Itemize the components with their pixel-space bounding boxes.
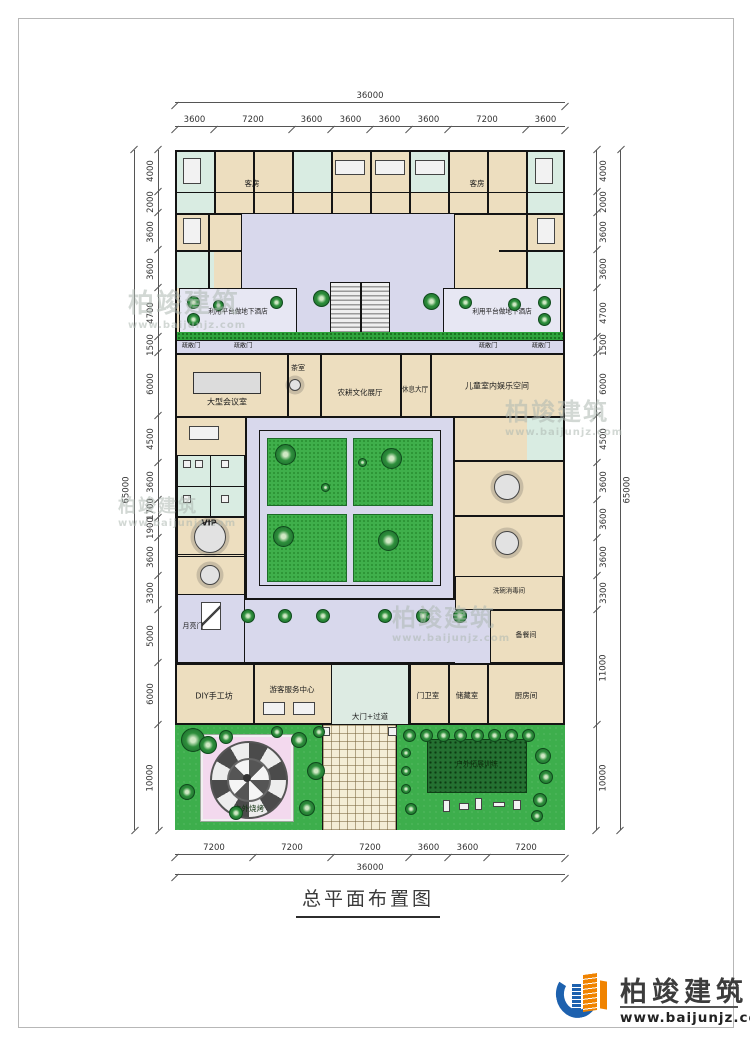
tree-icon — [378, 530, 399, 551]
tree-icon — [401, 784, 411, 794]
tree-icon — [488, 729, 501, 742]
tree-icon — [454, 729, 467, 742]
wall — [409, 152, 411, 213]
dim-segment: 3600 — [292, 112, 331, 127]
dim-left-segments: 4000200036003600470015006000450036001700… — [144, 150, 159, 830]
hedge-strip — [177, 332, 563, 340]
wall — [177, 250, 241, 252]
round-table — [495, 531, 519, 555]
table — [189, 426, 219, 440]
tree-icon — [313, 290, 330, 307]
tree-icon — [471, 729, 484, 742]
logo-building-orange-2 — [600, 980, 607, 1009]
dim-bottom-total: 36000 — [175, 860, 565, 875]
room-label-visitor-center: 游客服务中心 — [270, 686, 315, 694]
room-label-vip: VIP — [201, 520, 216, 529]
playground-equipment — [475, 798, 482, 810]
dim-segment: 3600 — [596, 538, 611, 576]
playground-equipment — [513, 800, 521, 810]
tree-icon — [531, 810, 543, 822]
playground-equipment — [459, 803, 469, 810]
tree-icon — [271, 726, 283, 738]
tree-icon — [316, 609, 330, 623]
playground-equipment — [493, 802, 505, 807]
drawing-page: 36000 36007200360036003600360072003600 7… — [0, 0, 750, 1044]
room-label-conference: 大型会议室 — [207, 399, 247, 408]
tree-icon — [401, 766, 411, 776]
tree-icon — [213, 300, 224, 311]
paved-path — [322, 725, 397, 830]
tree-icon — [459, 296, 472, 309]
bathroom-zone — [527, 418, 563, 460]
dim-right-total: 65000 — [620, 150, 635, 830]
dim-segment: 10000 — [596, 725, 611, 830]
room-label-exhibition: 农耕文化展厅 — [338, 389, 383, 397]
evac-door-label: 疏散门 — [182, 344, 201, 351]
bed — [335, 160, 365, 175]
tree-icon — [539, 770, 553, 784]
tree-icon — [241, 609, 255, 623]
bed — [535, 158, 553, 184]
round-table — [494, 474, 520, 500]
tree-icon — [522, 729, 535, 742]
dim-segment: 11000 — [596, 610, 611, 725]
dim-segment: 3600 — [409, 112, 448, 127]
dim-segment: 3600 — [596, 250, 611, 288]
wall — [292, 152, 294, 213]
wall — [455, 515, 563, 517]
bathroom-zone — [292, 152, 331, 192]
fixture — [195, 460, 203, 468]
dim-segment: 3600 — [448, 840, 487, 855]
dim-segment: 4000 — [144, 150, 159, 192]
dim-segment: 4700 — [596, 288, 611, 337]
wall — [448, 663, 450, 725]
wall — [177, 416, 563, 418]
tree-icon — [291, 732, 307, 748]
dim-segment: 6000 — [144, 663, 159, 726]
bed — [183, 158, 201, 184]
gate-post — [388, 727, 397, 736]
tree-icon — [538, 313, 551, 326]
tree-icon — [358, 458, 367, 467]
round-table — [200, 565, 220, 585]
dim-segment: 2000 — [144, 192, 159, 213]
tree-icon — [381, 448, 402, 469]
wall — [430, 353, 432, 416]
tea-table — [289, 379, 301, 391]
dim-segment: 7200 — [175, 840, 253, 855]
wall — [400, 353, 402, 416]
tree-icon — [401, 748, 411, 758]
dim-segment: 4500 — [144, 416, 159, 463]
dim-segment: 5000 — [144, 610, 159, 662]
bed — [415, 160, 445, 175]
fixture — [221, 495, 229, 503]
dim-segment: 65000 — [620, 150, 635, 830]
dim-segment: 3600 — [596, 463, 611, 501]
dim-segment: 3600 — [596, 213, 611, 251]
wall — [214, 152, 216, 213]
room-label-terrace-right: 利用平台做地下酒店 — [472, 308, 531, 315]
bed — [537, 218, 555, 244]
dim-segment: 3600 — [144, 538, 159, 576]
dim-segment: 3600 — [409, 840, 448, 855]
wall — [487, 663, 489, 725]
evac-door-label: 疏散门 — [234, 344, 253, 351]
room-label-guest-left: 客房 — [245, 180, 260, 188]
room-label-rest-hall: 休息大厅 — [402, 386, 428, 393]
wall — [487, 152, 489, 213]
wall — [320, 353, 322, 416]
dim-segment: 3600 — [144, 463, 159, 501]
dim-segment: 7200 — [214, 112, 292, 127]
tree-icon — [219, 730, 233, 744]
fixture — [183, 495, 191, 503]
room-label-tea: 茶室 — [291, 365, 305, 373]
dim-segment: 6000 — [596, 353, 611, 416]
tree-icon — [437, 729, 450, 742]
floor-plan: 客房 客房 利用平台做地下酒店 利用平台做地下酒店 疏散门 疏散门 疏散门 疏散… — [175, 150, 565, 830]
wall — [409, 663, 411, 725]
tree-icon — [420, 729, 433, 742]
fixture — [221, 460, 229, 468]
dim-segment: 6000 — [144, 353, 159, 416]
room-label-diy: DIY手工坊 — [195, 693, 232, 702]
tree-icon — [405, 803, 417, 815]
tree-icon — [505, 729, 518, 742]
tree-icon — [403, 729, 416, 742]
tree-icon — [273, 526, 294, 547]
tree-icon — [416, 609, 430, 623]
room-label-guest-right: 客房 — [470, 180, 485, 188]
room-label-prep: 备餐间 — [516, 632, 537, 640]
dim-segment: 3600 — [144, 250, 159, 288]
evac-door-label: 疏散门 — [479, 344, 498, 351]
dim-segment: 1700 — [144, 500, 159, 518]
wall — [177, 192, 563, 193]
desk — [263, 702, 285, 715]
planting-quad — [267, 514, 347, 582]
wall — [331, 152, 333, 213]
bathroom-zone — [526, 250, 563, 288]
wall — [253, 663, 255, 725]
dim-segment: 3600 — [175, 112, 214, 127]
tree-icon — [508, 298, 521, 311]
wall — [448, 152, 450, 213]
tree-icon — [187, 313, 200, 326]
dim-bottom-segments: 720072007200360036007200 — [175, 840, 565, 855]
dim-segment: 3300 — [596, 576, 611, 611]
tree-icon — [307, 762, 325, 780]
room-label-gate: 大门+过道 — [352, 713, 388, 721]
conference-table — [193, 372, 261, 394]
dim-segment: 3600 — [331, 112, 370, 127]
tree-icon — [533, 793, 547, 807]
logo-divider — [620, 1006, 738, 1008]
dim-segment: 3600 — [144, 213, 159, 251]
dim-top-segments: 36007200360036003600360072003600 — [175, 112, 565, 127]
tree-icon — [229, 806, 243, 820]
room-label-dishwash: 洗碗消毒间 — [493, 587, 525, 594]
dim-segment: 4700 — [144, 288, 159, 337]
room-label-guard: 门卫室 — [417, 692, 440, 700]
wall — [175, 663, 565, 665]
dim-top-total: 36000 — [175, 88, 565, 103]
dim-segment: 36000 — [175, 860, 565, 875]
dim-segment: 7200 — [331, 840, 409, 855]
tree-icon — [378, 609, 392, 623]
dim-segment: 4500 — [596, 416, 611, 463]
tree-icon — [321, 483, 330, 492]
tree-icon — [270, 296, 283, 309]
room-label-training: 户外拓展训练 — [456, 761, 498, 769]
drawing-title: 总平面布置图 — [296, 884, 440, 918]
dim-segment: 65000 — [120, 150, 135, 830]
tree-icon — [275, 444, 296, 465]
room-label-storage: 储藏室 — [456, 692, 479, 700]
dim-segment: 7200 — [448, 112, 526, 127]
dim-left-total: 65000 — [120, 150, 135, 830]
logo-brand-text: 柏竣建筑 — [620, 970, 748, 1009]
room-label-kids: 儿童室内娱乐空间 — [465, 383, 529, 392]
wall — [253, 152, 255, 213]
logo-building-blue — [572, 984, 581, 1010]
wall — [177, 353, 563, 355]
tree-icon — [278, 609, 292, 623]
wall — [526, 152, 528, 213]
tree-icon — [299, 800, 315, 816]
wall — [370, 152, 372, 213]
dim-segment: 4000 — [596, 150, 611, 192]
evac-door-label: 疏散门 — [532, 344, 551, 351]
tree-icon — [423, 293, 440, 310]
tree-icon — [535, 748, 551, 764]
wall — [499, 250, 563, 252]
bed — [183, 218, 201, 244]
dim-segment: 10000 — [144, 725, 159, 830]
wall — [287, 353, 289, 416]
easel — [201, 602, 221, 630]
bed — [375, 160, 405, 175]
wall — [455, 213, 563, 215]
dim-segment: 1900 — [144, 518, 159, 538]
tree-icon — [453, 609, 467, 623]
baijun-logo-icon — [556, 964, 614, 1024]
tree-icon — [313, 726, 325, 738]
tree-icon — [538, 296, 551, 309]
fire-pit-center — [243, 774, 251, 782]
wall — [245, 416, 247, 594]
stairs — [330, 282, 390, 335]
dim-segment: 7200 — [487, 840, 565, 855]
dim-right-segments: 4000200036003600470015006000450036003600… — [596, 150, 611, 830]
fixture — [183, 460, 191, 468]
wall — [455, 460, 563, 462]
playground-equipment — [443, 800, 450, 812]
dim-segment: 3600 — [370, 112, 409, 127]
dim-segment: 1500 — [144, 337, 159, 353]
dim-segment: 3300 — [144, 576, 159, 611]
desk — [293, 702, 315, 715]
dim-segment: 3600 — [526, 112, 565, 127]
logo-url-text: www.baijunjz.com — [620, 1010, 750, 1026]
tree-icon — [199, 736, 217, 754]
room-label-kitchen: 厨房间 — [515, 692, 538, 700]
logo-building-orange — [583, 973, 597, 1012]
dim-segment: 3600 — [596, 500, 611, 538]
wall — [177, 486, 245, 487]
dim-segment: 7200 — [253, 840, 331, 855]
tree-icon — [179, 784, 195, 800]
room-label-moon-gate: 月亮门 — [183, 623, 204, 631]
tree-icon — [187, 296, 200, 309]
dim-segment: 36000 — [175, 88, 565, 103]
